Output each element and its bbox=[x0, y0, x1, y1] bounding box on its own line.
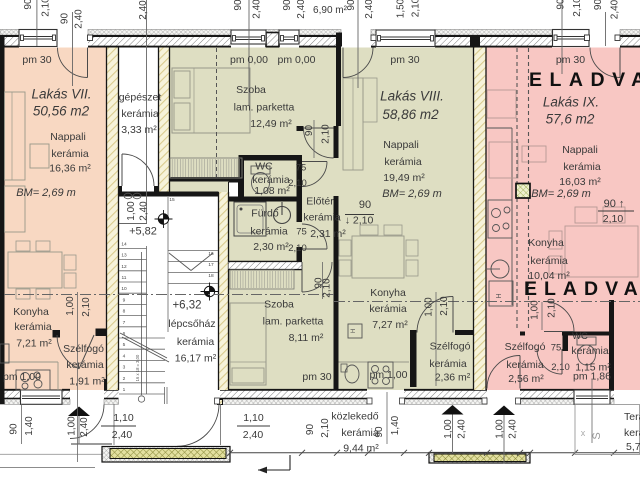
svg-text:kerámia: kerámia bbox=[121, 108, 159, 120]
svg-text:1,00: 1,00 bbox=[126, 201, 137, 221]
svg-text:BM= 2,69 m: BM= 2,69 m bbox=[382, 188, 442, 200]
svg-text:90: 90 bbox=[8, 423, 19, 435]
svg-text:57,6 m2: 57,6 m2 bbox=[546, 112, 595, 127]
svg-text:kerámia: kerámia bbox=[506, 359, 544, 371]
svg-text:kerámia: kerámia bbox=[14, 321, 52, 333]
svg-text:2,40: 2,40 bbox=[73, 9, 84, 29]
svg-text:kerámia: kerámia bbox=[66, 359, 104, 371]
svg-text:2,40: 2,40 bbox=[364, 0, 375, 19]
svg-text:16,36 m²: 16,36 m² bbox=[49, 163, 91, 175]
svg-text:2: 2 bbox=[123, 376, 126, 382]
svg-text:pm 1,00: pm 1,00 bbox=[370, 369, 408, 381]
svg-text:16,03 m²: 16,03 m² bbox=[559, 176, 601, 188]
svg-text:75: 75 bbox=[296, 227, 307, 238]
svg-text:lam. parketta: lam. parketta bbox=[234, 102, 295, 114]
svg-text:pm 0,00: pm 0,00 bbox=[278, 54, 316, 66]
svg-text:13: 13 bbox=[121, 253, 127, 259]
svg-text:ELADVA: ELADVA bbox=[524, 278, 640, 300]
svg-text:+6,32: +6,32 bbox=[172, 300, 201, 312]
svg-text:+5,82: +5,82 bbox=[129, 226, 157, 238]
svg-text:2,40: 2,40 bbox=[138, 0, 149, 20]
svg-text:kerámia: kerámia bbox=[369, 303, 407, 315]
svg-text:kerámia: kerámia bbox=[51, 148, 89, 160]
svg-text:Konyha: Konyha bbox=[13, 306, 49, 318]
svg-text:2,10: 2,10 bbox=[603, 213, 624, 225]
svg-text:S: S bbox=[591, 432, 603, 439]
svg-text:1,00: 1,00 bbox=[65, 296, 76, 316]
svg-text:kerámia: kerámia bbox=[303, 212, 341, 224]
svg-text:1,50: 1,50 bbox=[395, 0, 406, 18]
svg-text:9: 9 bbox=[123, 297, 126, 303]
svg-text:x: x bbox=[581, 428, 586, 438]
svg-text:1,15 m²: 1,15 m² bbox=[575, 362, 611, 374]
svg-text:pm 30: pm 30 bbox=[302, 371, 331, 383]
svg-text:pm 30: pm 30 bbox=[556, 54, 585, 66]
svg-text:2,10: 2,10 bbox=[321, 278, 332, 298]
svg-text:90: 90 bbox=[593, 0, 604, 10]
svg-text:1,00: 1,00 bbox=[423, 297, 434, 317]
svg-text:18: 18 bbox=[208, 273, 214, 279]
svg-text:kerámia: kerámia bbox=[177, 336, 215, 348]
svg-text:BM= 2,69 m: BM= 2,69 m bbox=[531, 188, 591, 200]
svg-text:gépészet: gépészet bbox=[119, 92, 162, 104]
svg-text:kerámia: kerámia bbox=[530, 255, 568, 267]
svg-text:H: H bbox=[351, 329, 357, 333]
svg-text:2,40: 2,40 bbox=[609, 0, 620, 19]
svg-text:5,79 m²: 5,79 m² bbox=[626, 441, 640, 453]
svg-text:Nappali: Nappali bbox=[50, 131, 86, 143]
svg-text:12,49 m²: 12,49 m² bbox=[250, 118, 292, 130]
svg-text:2,40: 2,40 bbox=[296, 0, 307, 19]
svg-text:H: H bbox=[496, 293, 503, 298]
svg-text:75: 75 bbox=[551, 343, 562, 354]
svg-text:kerámia: kerámia bbox=[563, 161, 601, 173]
svg-text:pm 1,00: pm 1,00 bbox=[3, 371, 41, 383]
svg-text:pm 0,00: pm 0,00 bbox=[230, 54, 268, 66]
svg-text:Szélfogó: Szélfogó bbox=[63, 343, 104, 355]
svg-text:1,00: 1,00 bbox=[443, 419, 454, 439]
svg-text:2,40: 2,40 bbox=[138, 201, 149, 221]
svg-text:pm 30: pm 30 bbox=[390, 54, 419, 66]
svg-text:90 ↑: 90 ↑ bbox=[604, 198, 625, 210]
svg-text:12: 12 bbox=[121, 264, 127, 270]
svg-text:kerámia: kerámia bbox=[624, 427, 640, 439]
svg-text:8,11 m²: 8,11 m² bbox=[289, 332, 324, 344]
svg-text:2,36 m²: 2,36 m² bbox=[435, 372, 471, 384]
svg-text:7,21 m²: 7,21 m² bbox=[16, 338, 52, 350]
svg-text:2,30 m²: 2,30 m² bbox=[253, 241, 289, 253]
svg-text:↓ 2,10: ↓ 2,10 bbox=[345, 215, 374, 227]
svg-text:Szoba: Szoba bbox=[264, 299, 294, 311]
svg-text:1,00: 1,00 bbox=[494, 419, 505, 439]
svg-text:2,40: 2,40 bbox=[79, 417, 90, 437]
svg-text:lépcsőház: lépcsőház bbox=[168, 318, 215, 330]
svg-text:BM= 2,69 m: BM= 2,69 m bbox=[16, 187, 76, 199]
svg-text:Lakás VIII.: Lakás VIII. bbox=[380, 89, 444, 104]
svg-text:WC: WC bbox=[572, 331, 588, 342]
svg-text:90: 90 bbox=[233, 0, 244, 11]
svg-text:90: 90 bbox=[555, 0, 566, 10]
svg-text:7,27 m²: 7,27 m² bbox=[372, 319, 408, 331]
svg-text:kerámia: kerámia bbox=[384, 156, 422, 168]
svg-text:1,08 m²: 1,08 m² bbox=[254, 185, 290, 197]
svg-text:2,40: 2,40 bbox=[456, 419, 467, 439]
svg-text:2,10: 2,10 bbox=[572, 0, 583, 17]
svg-text:pm 30: pm 30 bbox=[22, 54, 51, 66]
svg-text:90: 90 bbox=[282, 0, 293, 11]
svg-text:8: 8 bbox=[123, 309, 126, 315]
svg-text:2,10: 2,10 bbox=[551, 362, 570, 373]
svg-text:1,10: 1,10 bbox=[243, 412, 264, 424]
svg-text:1,00: 1,00 bbox=[529, 300, 540, 320]
svg-text:1,91 m²: 1,91 m² bbox=[69, 376, 105, 388]
svg-text:90: 90 bbox=[305, 424, 316, 436]
svg-text:75: 75 bbox=[296, 163, 307, 174]
svg-text:90: 90 bbox=[359, 199, 371, 211]
svg-text:Szélfogó: Szélfogó bbox=[505, 341, 546, 353]
svg-text:4: 4 bbox=[123, 353, 126, 359]
svg-text:1,10: 1,10 bbox=[113, 412, 134, 424]
svg-text:kerámia: kerámia bbox=[341, 427, 379, 439]
svg-text:3: 3 bbox=[123, 365, 126, 371]
svg-text:2,10: 2,10 bbox=[410, 0, 421, 17]
svg-text:1,40: 1,40 bbox=[390, 415, 401, 435]
svg-text:58,86 m2: 58,86 m2 bbox=[382, 107, 439, 122]
svg-text:1,00: 1,00 bbox=[66, 416, 77, 436]
svg-text:5: 5 bbox=[123, 342, 126, 348]
svg-text:2,10: 2,10 bbox=[439, 296, 450, 316]
svg-text:Szélfogó: Szélfogó bbox=[430, 341, 471, 353]
svg-text:14: 14 bbox=[121, 241, 127, 247]
svg-text:Nappali: Nappali bbox=[383, 139, 419, 151]
svg-text:3,33 m²: 3,33 m² bbox=[121, 124, 157, 136]
svg-text:2,10: 2,10 bbox=[40, 0, 51, 17]
svg-text:WC: WC bbox=[255, 161, 273, 173]
svg-text:kerámia: kerámia bbox=[571, 345, 609, 357]
svg-text:2,40: 2,40 bbox=[507, 419, 518, 439]
svg-text:2,10: 2,10 bbox=[546, 298, 557, 318]
svg-text:2,40: 2,40 bbox=[112, 429, 133, 441]
svg-text:2,10: 2,10 bbox=[81, 297, 92, 317]
svg-text:2,31 m²: 2,31 m² bbox=[310, 228, 346, 240]
svg-text:ELADVA: ELADVA bbox=[529, 69, 640, 91]
svg-text:2,10: 2,10 bbox=[320, 418, 331, 438]
svg-text:10: 10 bbox=[121, 286, 127, 292]
svg-text:15: 15 bbox=[169, 197, 175, 203]
svg-text:90: 90 bbox=[23, 0, 34, 10]
svg-text:16 x 18 = 3,00: 16 x 18 = 3,00 bbox=[135, 354, 140, 381]
svg-text:19,49 m²: 19,49 m² bbox=[383, 172, 425, 184]
svg-text:Konyha: Konyha bbox=[370, 287, 406, 299]
svg-text:90: 90 bbox=[304, 125, 315, 137]
svg-text:1: 1 bbox=[123, 387, 126, 393]
svg-text:2,40: 2,40 bbox=[251, 0, 262, 19]
svg-text:Konyha: Konyha bbox=[528, 237, 564, 249]
svg-text:Lakás IX.: Lakás IX. bbox=[543, 95, 599, 110]
svg-text:Nappali: Nappali bbox=[562, 144, 598, 156]
svg-text:2,40: 2,40 bbox=[243, 429, 264, 441]
svg-text:kerámia: kerámia bbox=[250, 226, 288, 238]
svg-text:17: 17 bbox=[208, 262, 214, 268]
svg-text:Terasz: Terasz bbox=[624, 411, 640, 423]
svg-text:Fürdő: Fürdő bbox=[251, 208, 279, 220]
svg-text:Szoba: Szoba bbox=[236, 84, 266, 96]
svg-text:2,10: 2,10 bbox=[320, 124, 331, 144]
svg-text:6,90 m²: 6,90 m² bbox=[313, 5, 348, 16]
svg-text:kerámia: kerámia bbox=[429, 358, 467, 370]
svg-text:11: 11 bbox=[122, 275, 127, 281]
svg-text:2,10: 2,10 bbox=[288, 178, 307, 189]
svg-text:közlekedő: közlekedő bbox=[331, 411, 378, 423]
svg-text:90: 90 bbox=[346, 0, 357, 11]
svg-text:9,44 m²: 9,44 m² bbox=[343, 443, 379, 455]
svg-text:50,56 m2: 50,56 m2 bbox=[33, 104, 90, 119]
svg-text:Lakás VII.: Lakás VII. bbox=[31, 87, 91, 102]
svg-text:16,17 m²: 16,17 m² bbox=[175, 353, 217, 365]
svg-text:7: 7 bbox=[123, 320, 126, 326]
svg-text:Előtér: Előtér bbox=[306, 196, 334, 208]
svg-text:1,40: 1,40 bbox=[24, 416, 35, 436]
svg-text:90: 90 bbox=[59, 13, 70, 25]
svg-text:lam. parketta: lam. parketta bbox=[263, 316, 324, 328]
svg-text:2,56 m²: 2,56 m² bbox=[508, 373, 544, 385]
svg-text:2,10: 2,10 bbox=[288, 243, 307, 254]
